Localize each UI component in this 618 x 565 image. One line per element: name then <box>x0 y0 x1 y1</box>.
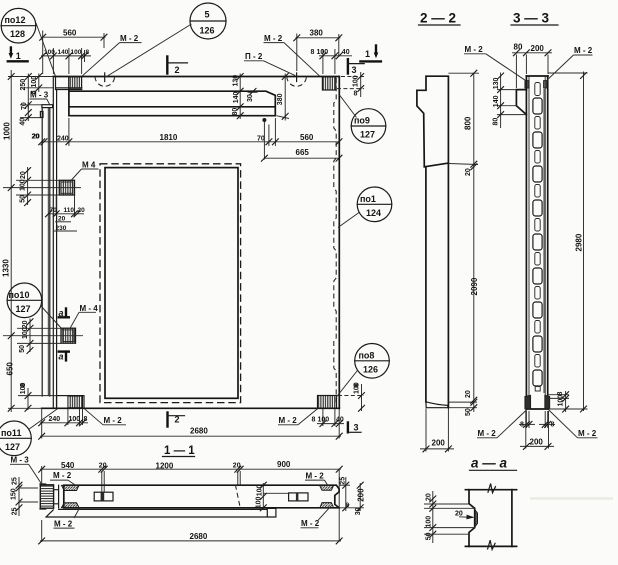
svg-text:по12: по12 <box>5 15 26 25</box>
svg-text:20: 20 <box>22 320 29 328</box>
svg-text:M - 2: M - 2 <box>264 34 283 43</box>
svg-text:100: 100 <box>22 327 29 339</box>
svg-text:3: 3 <box>354 423 359 433</box>
svg-text:50: 50 <box>465 408 472 416</box>
svg-text:20: 20 <box>465 168 472 176</box>
svg-text:560: 560 <box>300 133 314 142</box>
svg-text:127: 127 <box>5 442 20 452</box>
svg-text:M - 2: M - 2 <box>120 34 139 43</box>
svg-text:M - 2: M - 2 <box>301 519 320 528</box>
svg-text:665: 665 <box>296 148 310 157</box>
svg-text:100: 100 <box>317 49 329 56</box>
svg-text:127: 127 <box>16 304 31 314</box>
svg-text:1330: 1330 <box>2 259 11 277</box>
svg-text:M - 2: M - 2 <box>574 46 593 55</box>
svg-text:1: 1 <box>365 49 370 59</box>
svg-text:130: 130 <box>232 75 239 87</box>
svg-text:1810: 1810 <box>160 133 178 142</box>
svg-text:30: 30 <box>355 507 362 515</box>
svg-text:200: 200 <box>530 437 544 446</box>
svg-text:240: 240 <box>57 136 69 143</box>
svg-text:по10: по10 <box>9 290 30 300</box>
svg-text:560: 560 <box>63 29 77 38</box>
svg-text:2090: 2090 <box>470 277 479 295</box>
svg-text:380: 380 <box>277 93 284 105</box>
svg-text:M - 2: M - 2 <box>279 416 298 425</box>
svg-text:70: 70 <box>257 135 265 142</box>
svg-text:M - 2: M - 2 <box>54 519 73 528</box>
svg-text:8: 8 <box>551 421 555 428</box>
svg-text:20: 20 <box>99 462 107 469</box>
svg-text:8: 8 <box>84 416 88 423</box>
svg-text:8: 8 <box>311 49 315 56</box>
svg-text:200: 200 <box>357 488 366 502</box>
svg-text:8: 8 <box>86 49 90 56</box>
svg-text:100: 100 <box>318 417 330 424</box>
svg-text:900: 900 <box>277 460 291 469</box>
svg-text:20: 20 <box>425 493 432 501</box>
svg-text:25: 25 <box>339 477 346 485</box>
svg-text:20: 20 <box>58 215 66 222</box>
svg-text:200: 200 <box>531 44 545 53</box>
svg-text:50: 50 <box>19 195 26 203</box>
svg-text:8: 8 <box>520 421 524 428</box>
svg-text:100: 100 <box>257 485 264 497</box>
svg-text:3 — 3: 3 — 3 <box>513 11 550 26</box>
svg-text:25: 25 <box>12 477 19 485</box>
svg-text:100: 100 <box>353 75 360 87</box>
svg-text:126: 126 <box>363 364 378 374</box>
svg-text:100: 100 <box>256 497 263 509</box>
svg-text:124: 124 <box>366 208 381 218</box>
svg-text:800: 800 <box>464 116 473 130</box>
svg-text:140: 140 <box>58 49 69 56</box>
svg-text:2 — 2: 2 — 2 <box>420 11 456 26</box>
svg-text:M - 2: M - 2 <box>465 45 484 54</box>
svg-text:3: 3 <box>352 65 357 75</box>
svg-text:1 — 1: 1 — 1 <box>164 445 195 457</box>
svg-text:80: 80 <box>232 108 239 116</box>
svg-text:130: 130 <box>493 78 500 90</box>
svg-text:200: 200 <box>432 439 446 448</box>
svg-text:2680: 2680 <box>190 427 208 436</box>
svg-text:M - 2: M - 2 <box>104 416 123 425</box>
svg-text:128: 128 <box>10 29 25 39</box>
svg-text:M - 3: M - 3 <box>11 456 30 465</box>
svg-text:M - 2: M - 2 <box>306 471 325 480</box>
svg-text:100: 100 <box>425 516 432 528</box>
svg-text:по11: по11 <box>1 428 21 438</box>
svg-text:140: 140 <box>493 95 500 107</box>
svg-text:M - 2: M - 2 <box>478 429 497 438</box>
svg-text:126: 126 <box>200 26 215 36</box>
svg-text:1200: 1200 <box>156 461 174 470</box>
svg-text:250: 250 <box>20 79 27 91</box>
svg-text:40: 40 <box>342 49 350 56</box>
svg-text:25: 25 <box>12 507 19 515</box>
svg-text:M 4: M 4 <box>82 161 96 170</box>
svg-text:M - 2: M - 2 <box>53 471 72 480</box>
svg-text:100: 100 <box>558 395 565 407</box>
svg-text:20: 20 <box>455 510 463 517</box>
svg-text:M - 4: M - 4 <box>80 304 99 313</box>
svg-text:50: 50 <box>425 532 432 540</box>
svg-text:1: 1 <box>16 51 21 61</box>
svg-text:20: 20 <box>32 134 40 141</box>
svg-text:110: 110 <box>64 207 75 214</box>
svg-text:a — a: a — a <box>471 456 508 471</box>
svg-text:8: 8 <box>346 502 350 509</box>
svg-text:по1: по1 <box>360 194 376 204</box>
svg-text:30: 30 <box>247 94 254 102</box>
svg-text:230: 230 <box>56 225 67 232</box>
svg-text:П - 2: П - 2 <box>245 52 263 61</box>
svg-text:2680: 2680 <box>190 532 208 541</box>
svg-text:M - 2: M - 2 <box>578 429 597 438</box>
svg-text:M - 3: M - 3 <box>30 91 49 100</box>
svg-text:540: 540 <box>61 461 75 470</box>
svg-text:70: 70 <box>50 207 58 214</box>
svg-text:8: 8 <box>354 91 358 98</box>
svg-text:8: 8 <box>312 417 316 424</box>
svg-text:100: 100 <box>69 416 81 423</box>
svg-text:1000: 1000 <box>3 122 12 140</box>
svg-text:5: 5 <box>205 10 210 20</box>
svg-text:127: 127 <box>360 130 375 140</box>
svg-text:2: 2 <box>175 65 180 75</box>
svg-text:20: 20 <box>20 171 27 179</box>
svg-text:20: 20 <box>78 207 86 214</box>
svg-text:380: 380 <box>310 28 324 37</box>
svg-text:150: 150 <box>11 488 18 500</box>
svg-text:20: 20 <box>465 390 472 398</box>
svg-text:70: 70 <box>21 102 28 110</box>
svg-text:80: 80 <box>492 118 499 126</box>
svg-text:100: 100 <box>31 76 38 88</box>
svg-text:100: 100 <box>19 179 26 191</box>
svg-text:40: 40 <box>336 417 344 424</box>
svg-text:50: 50 <box>19 345 26 353</box>
svg-text:100: 100 <box>71 49 82 56</box>
svg-text:140: 140 <box>233 92 240 104</box>
svg-text:2980: 2980 <box>575 233 584 251</box>
svg-text:8: 8 <box>20 383 27 387</box>
svg-text:a: a <box>59 308 64 318</box>
svg-text:80: 80 <box>514 42 523 51</box>
svg-text:по8: по8 <box>359 350 375 360</box>
svg-text:40: 40 <box>20 118 27 126</box>
svg-text:2: 2 <box>175 415 180 425</box>
svg-text:240: 240 <box>49 416 61 423</box>
svg-text:a: a <box>59 352 64 362</box>
svg-text:20: 20 <box>233 462 241 469</box>
svg-text:8: 8 <box>354 383 361 387</box>
svg-text:650: 650 <box>6 362 15 376</box>
